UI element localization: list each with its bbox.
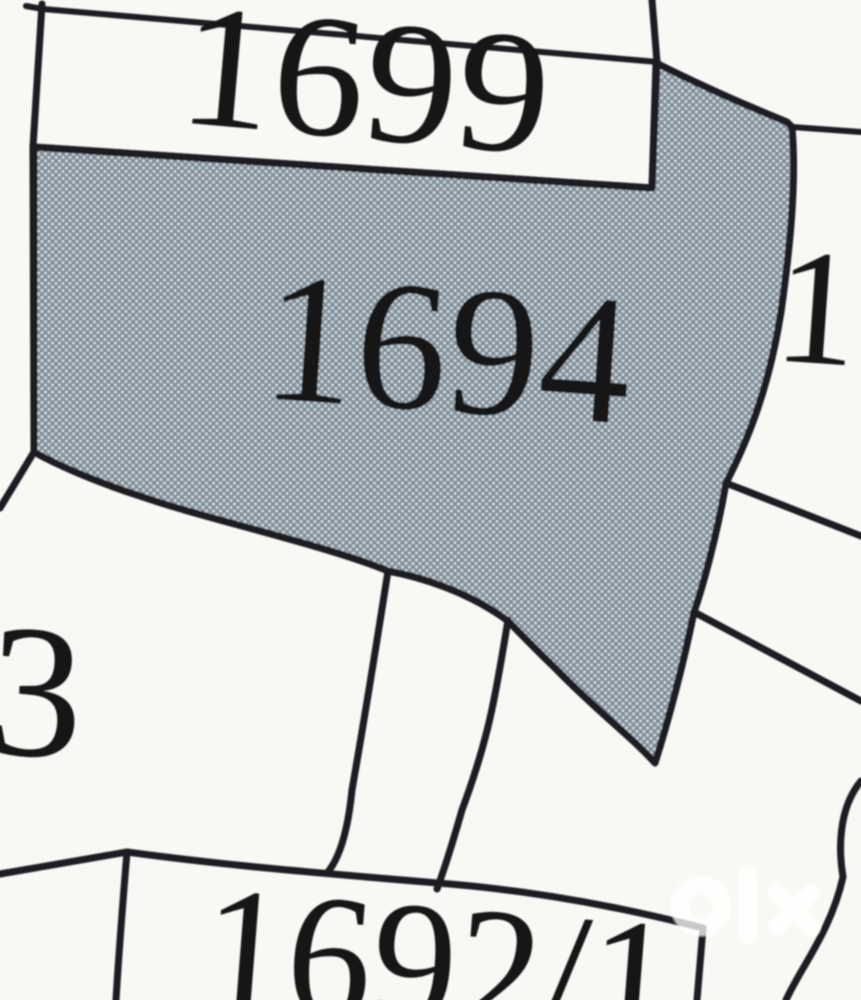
plot-label-1699: 1699 [173, 0, 559, 192]
right-vertical-boundary [652, 0, 657, 188]
plot-label-16-partial: 16 [769, 213, 861, 407]
olx-india-caption: INDIA [766, 939, 806, 950]
olx-letter-l-icon [738, 866, 757, 945]
plot-label-1694: 1694 [257, 234, 638, 464]
cadastral-map-canvas: 1699 1694 16 3 1692/1 INDIA [0, 0, 861, 1000]
map-photo: 1699 1694 16 3 1692/1 INDIA [0, 0, 861, 1000]
plot-label-3-partial: 3 [0, 585, 89, 800]
